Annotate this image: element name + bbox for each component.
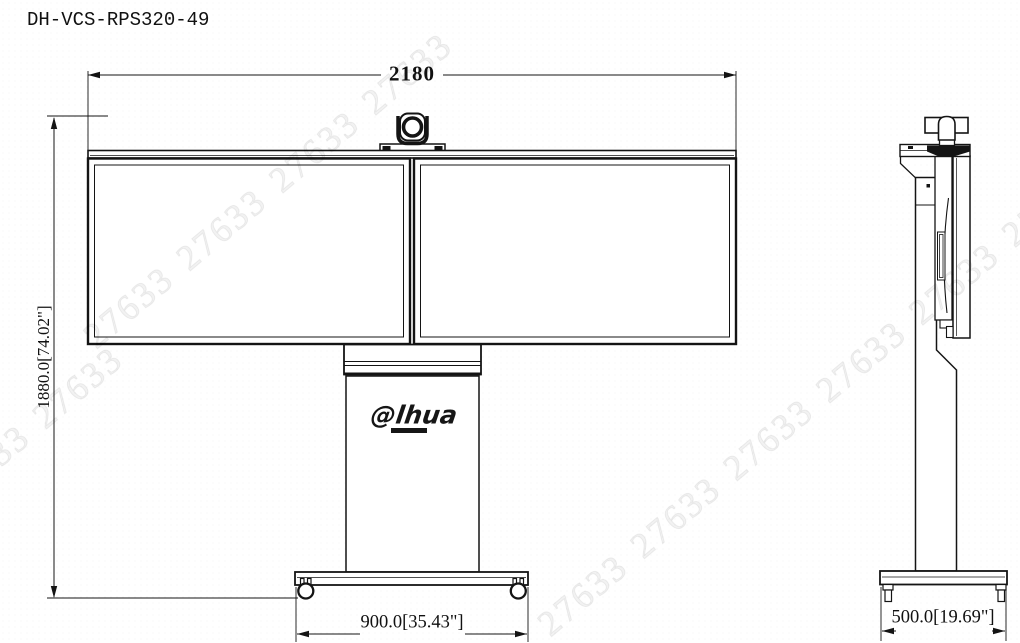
front-left-screen <box>88 159 410 345</box>
dahua-logo: @lhua <box>369 401 459 430</box>
side-camera <box>925 117 968 146</box>
line-art-drawing <box>0 0 1020 643</box>
technical-drawing-page: 27633 27633 27633 27633 27633 27633 2763… <box>0 0 1020 643</box>
dim-front-base-width-label: 900.0[35.43"] <box>360 613 463 634</box>
side-base <box>880 571 1007 585</box>
side-casters <box>883 585 1006 602</box>
front-top-shelf <box>88 151 736 159</box>
front-right-screen <box>414 159 736 345</box>
dim-overall-height-label: 1880.0[74.02"] <box>34 305 54 408</box>
side-mount-plate <box>935 155 953 328</box>
dahua-logo-underline <box>391 428 427 433</box>
dim-overall-width-label: 2180 <box>389 62 435 87</box>
front-mount-bracket <box>344 345 481 375</box>
dim-side-base-depth-label: 500.0[19.69"] <box>891 608 994 629</box>
front-base <box>295 572 528 585</box>
model-number: DH-VCS-RPS320-49 <box>27 9 209 31</box>
front-camera <box>380 114 445 155</box>
